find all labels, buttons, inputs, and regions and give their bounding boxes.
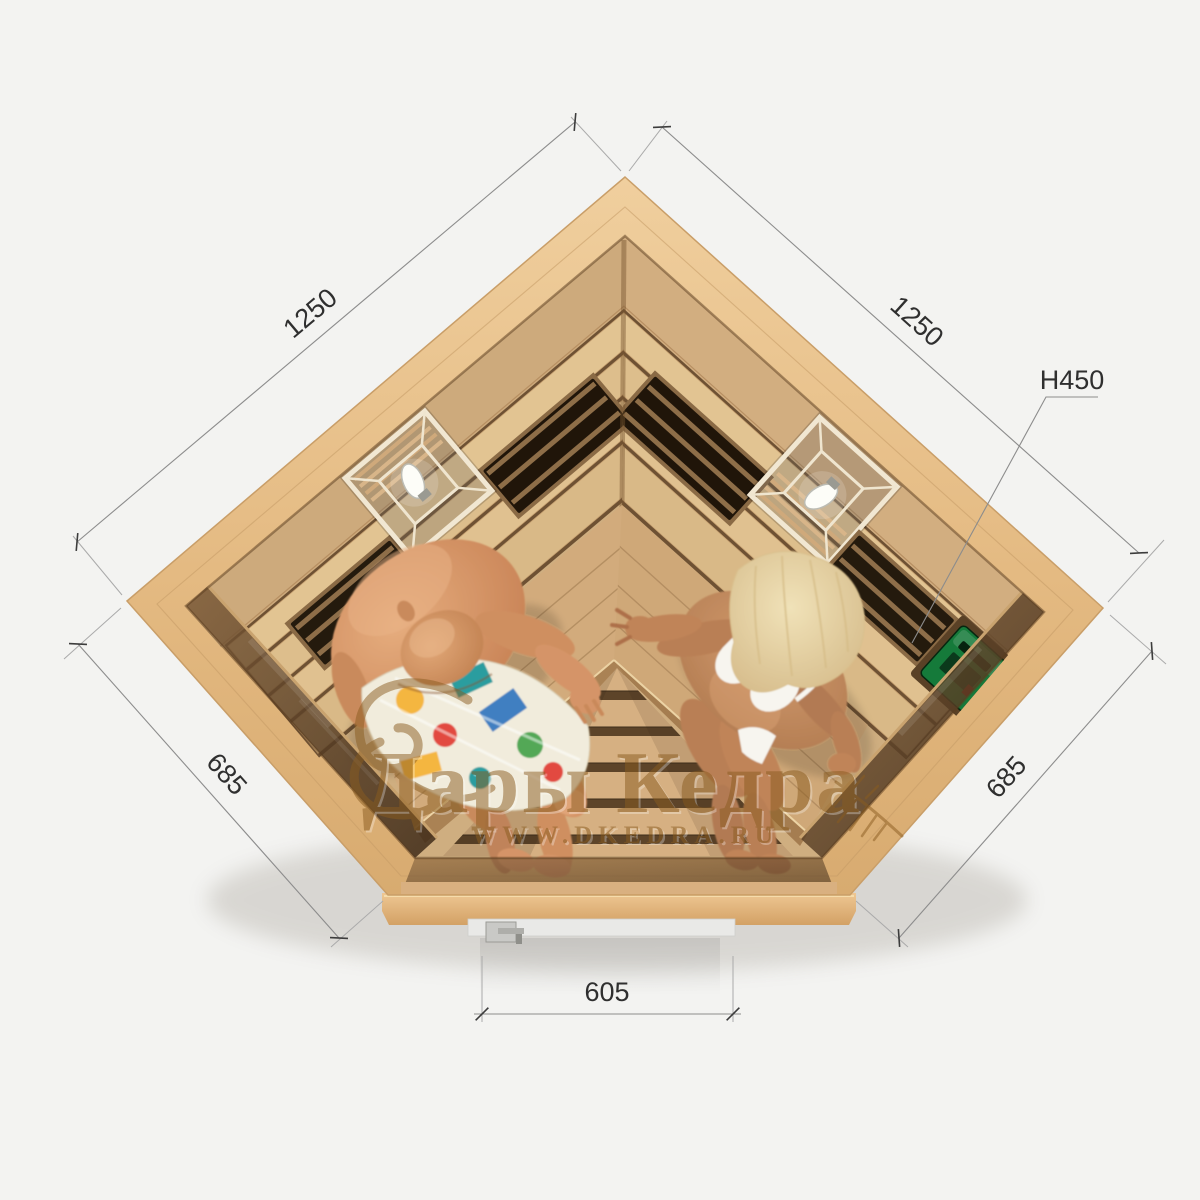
corner-post [622,240,624,508]
sauna-top-view-svg: Дары Кедра Дары Кедра WWW.DKEDRA.RU WWW.… [0,0,1200,1200]
glass-door-front [401,858,837,894]
dim-label-height: H450 [1040,365,1105,395]
watermark-site-text: WWW.DKEDRA.RU [471,822,779,849]
sauna-render-canvas: Дары Кедра Дары Кедра WWW.DKEDRA.RU WWW.… [0,0,1200,1200]
watermark-brand-text: Дары Кедра [362,735,862,832]
dim-label-door: 605 [584,977,629,1007]
